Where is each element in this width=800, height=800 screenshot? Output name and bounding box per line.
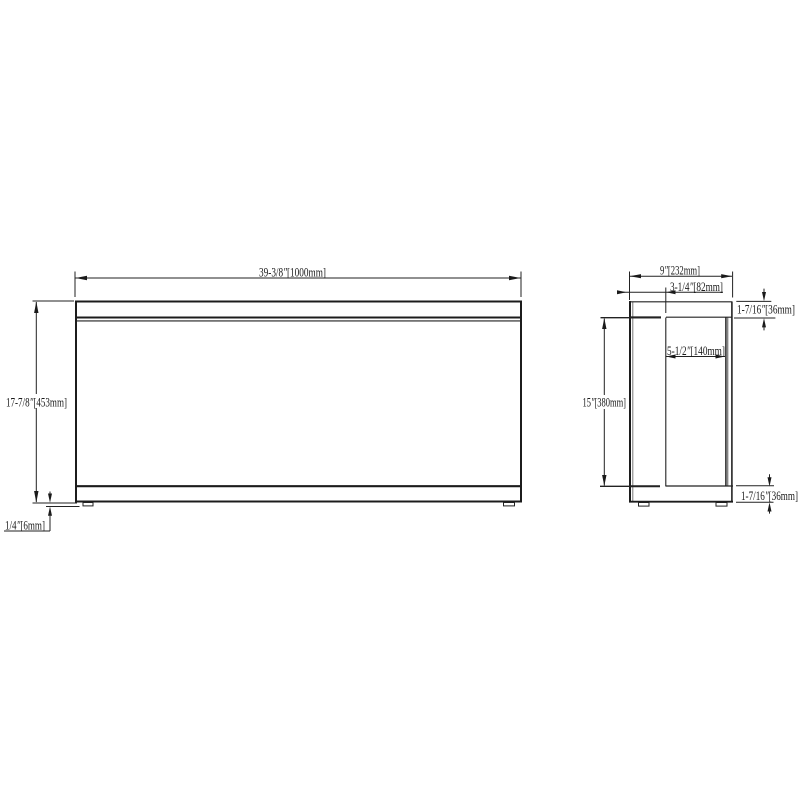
svg-text:1/4″[6mm]: 1/4″[6mm] xyxy=(5,518,45,533)
svg-text:5-1/2″[140mm]: 5-1/2″[140mm] xyxy=(667,343,725,358)
svg-text:15″[380mm]: 15″[380mm] xyxy=(583,395,627,410)
svg-text:1-7/16″[36mm]: 1-7/16″[36mm] xyxy=(737,302,795,317)
svg-text:9″[232mm]: 9″[232mm] xyxy=(660,263,700,278)
svg-text:17-7/8″[453mm]: 17-7/8″[453mm] xyxy=(6,395,67,410)
svg-text:39-3/8″[1000mm]: 39-3/8″[1000mm] xyxy=(259,265,326,280)
svg-text:3-1/4″[82mm]: 3-1/4″[82mm] xyxy=(670,279,723,294)
svg-text:1-7/16″[36mm]: 1-7/16″[36mm] xyxy=(741,488,798,503)
